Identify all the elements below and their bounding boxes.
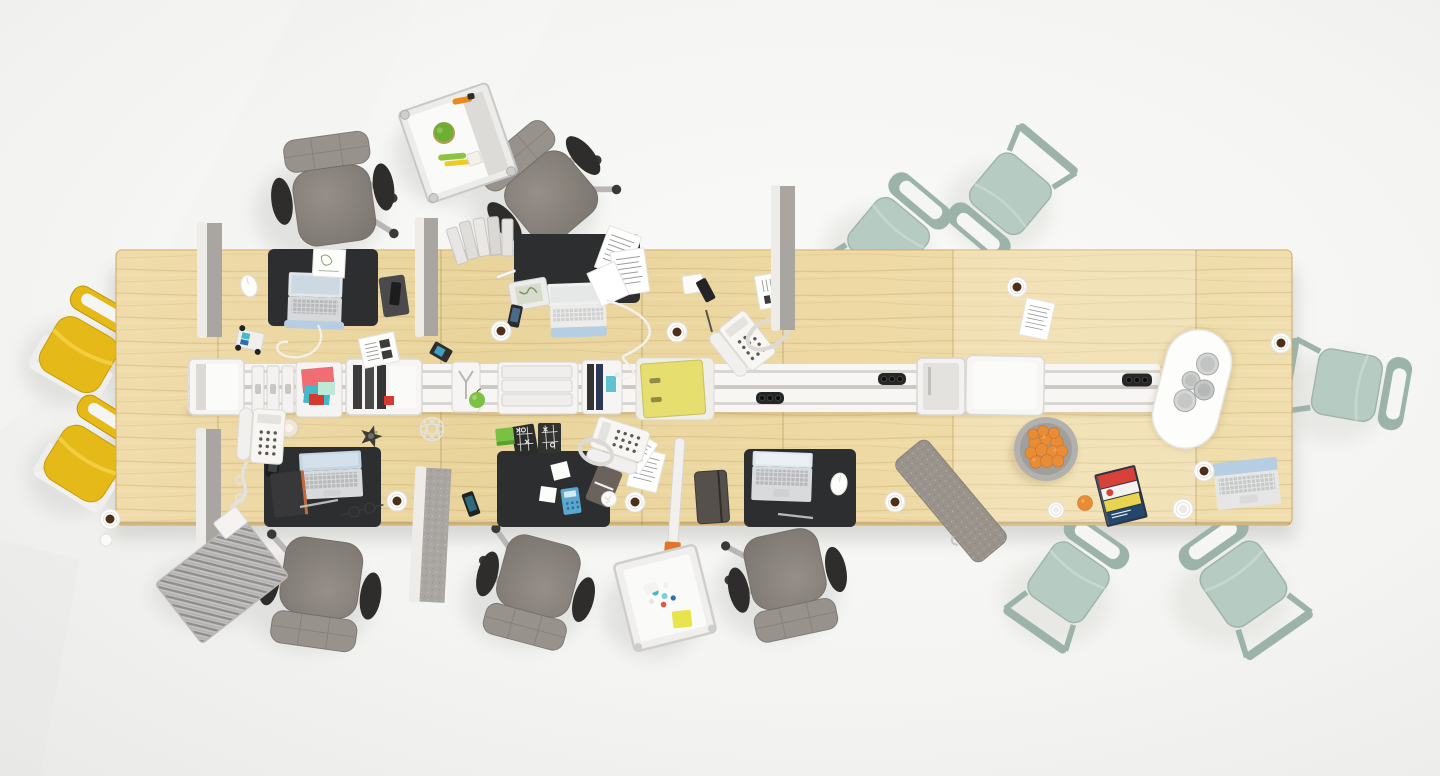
power-strip-2 [878,373,906,385]
photo-card [312,248,345,278]
green-note-block [495,427,515,446]
laptop-3 [299,450,363,499]
divider-3 [415,217,438,337]
storage-bin-right-2 [965,355,1044,415]
coffee-cup-1 [491,321,511,341]
flat-binder-tray [498,362,578,414]
laptop-1 [284,272,346,330]
power-strip-1 [756,392,784,404]
book-box [582,360,622,414]
office-birdseye-render: { "scene": { "description": "Top-down 3D… [0,0,1440,776]
white-binders [252,366,294,413]
calculator-blue [560,487,581,515]
coffee-cup-9 [1194,461,1214,481]
storage-box-books [346,359,422,415]
scene-canvas: Top-down 3D render of a long shared offi… [0,0,1440,776]
laptop-5 [1213,457,1282,510]
yellow-folder [640,360,706,418]
coffee-cup-8 [1271,333,1291,353]
coffee-cup-2 [667,322,687,342]
milk-cup [1173,499,1193,519]
notebook-recorder [378,274,409,317]
desk-phone-b [236,407,286,464]
divider-5 [771,185,795,331]
paper-tray-colorful [296,362,342,417]
espresso-cup [1048,502,1064,518]
notebook-pad3 [270,470,308,517]
notebook-dark-2 [694,470,730,524]
coffee-cup-6 [885,492,905,512]
coffee-cup-7 [1007,277,1027,297]
storage-bin-left [189,359,244,415]
crumpled-paper-1 [602,492,617,507]
divider-4 [408,466,451,604]
storage-bin-right-1 [917,358,965,415]
coffee-cup-4 [387,491,407,511]
coffee-cup-5 [625,492,645,512]
coffee-cup-3 [100,509,120,529]
clementine [1078,496,1093,511]
divider-1 [197,222,222,338]
crumpled-paper-2 [100,534,112,546]
power-strip-3 [1122,374,1152,387]
laptop-4 [751,451,813,502]
folder-tray [636,358,714,420]
